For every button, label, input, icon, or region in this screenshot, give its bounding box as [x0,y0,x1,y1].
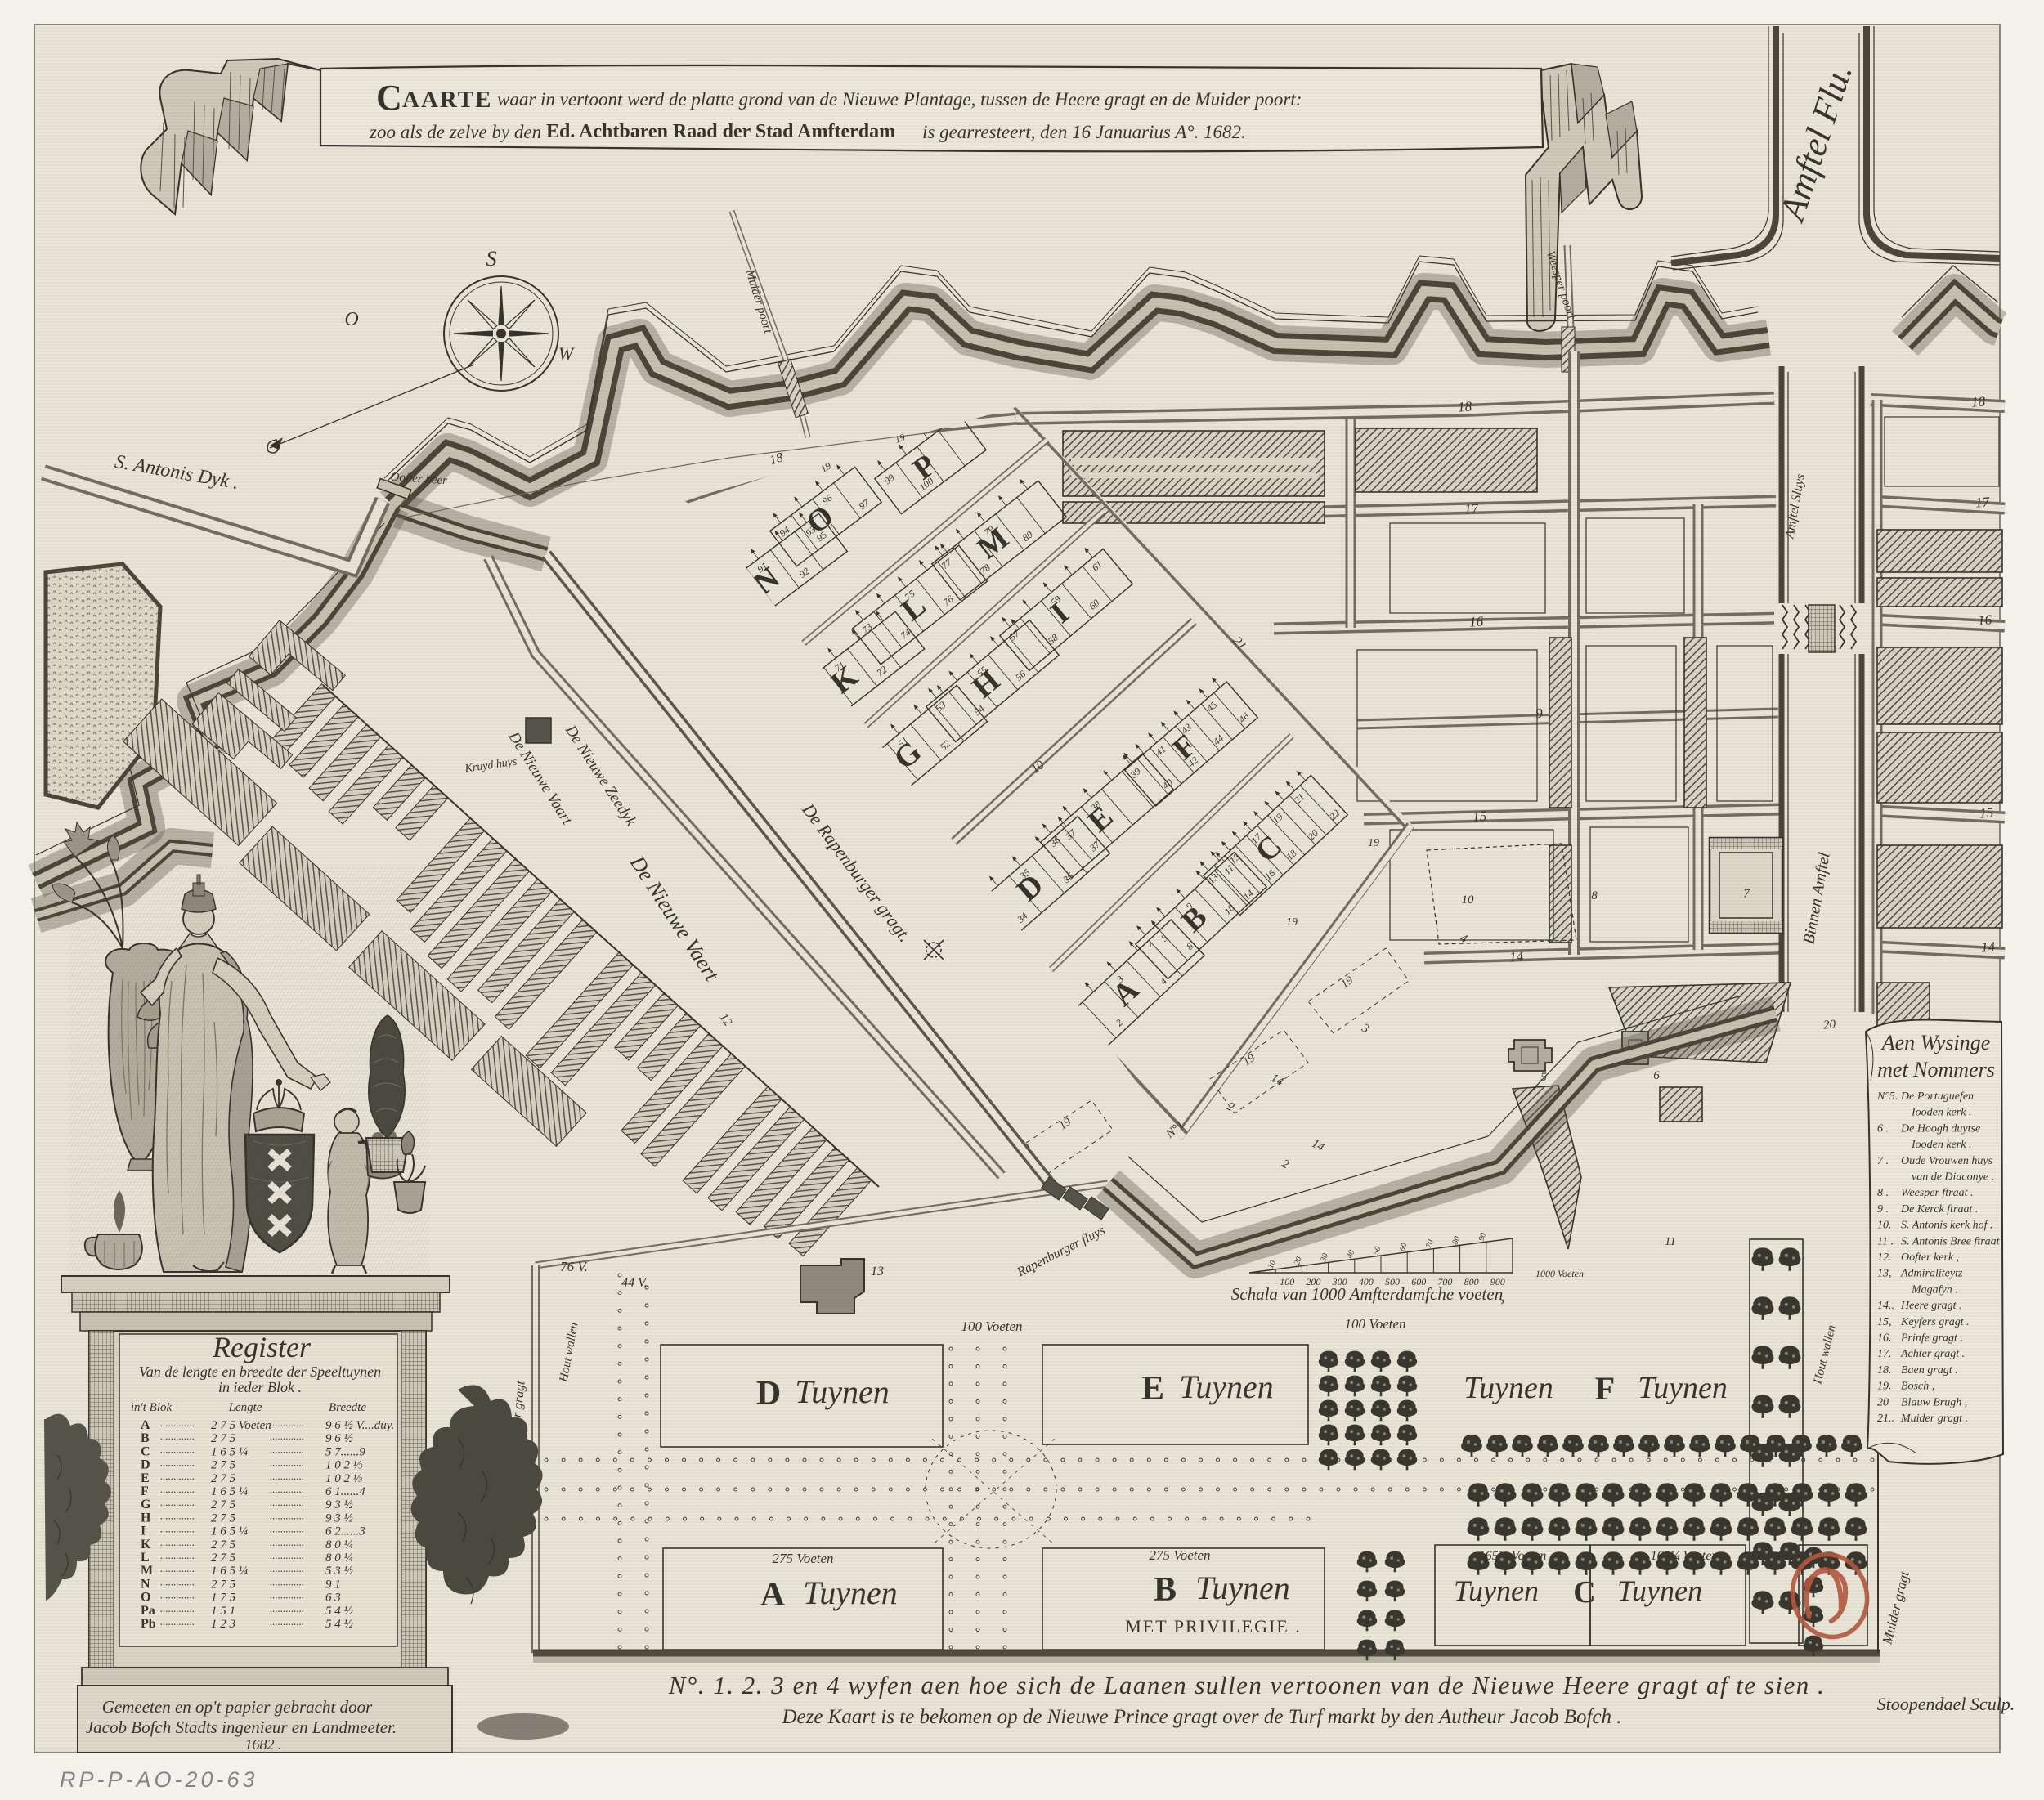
svg-text:RP-P-AO-20-63: RP-P-AO-20-63 [60,1767,258,1792]
